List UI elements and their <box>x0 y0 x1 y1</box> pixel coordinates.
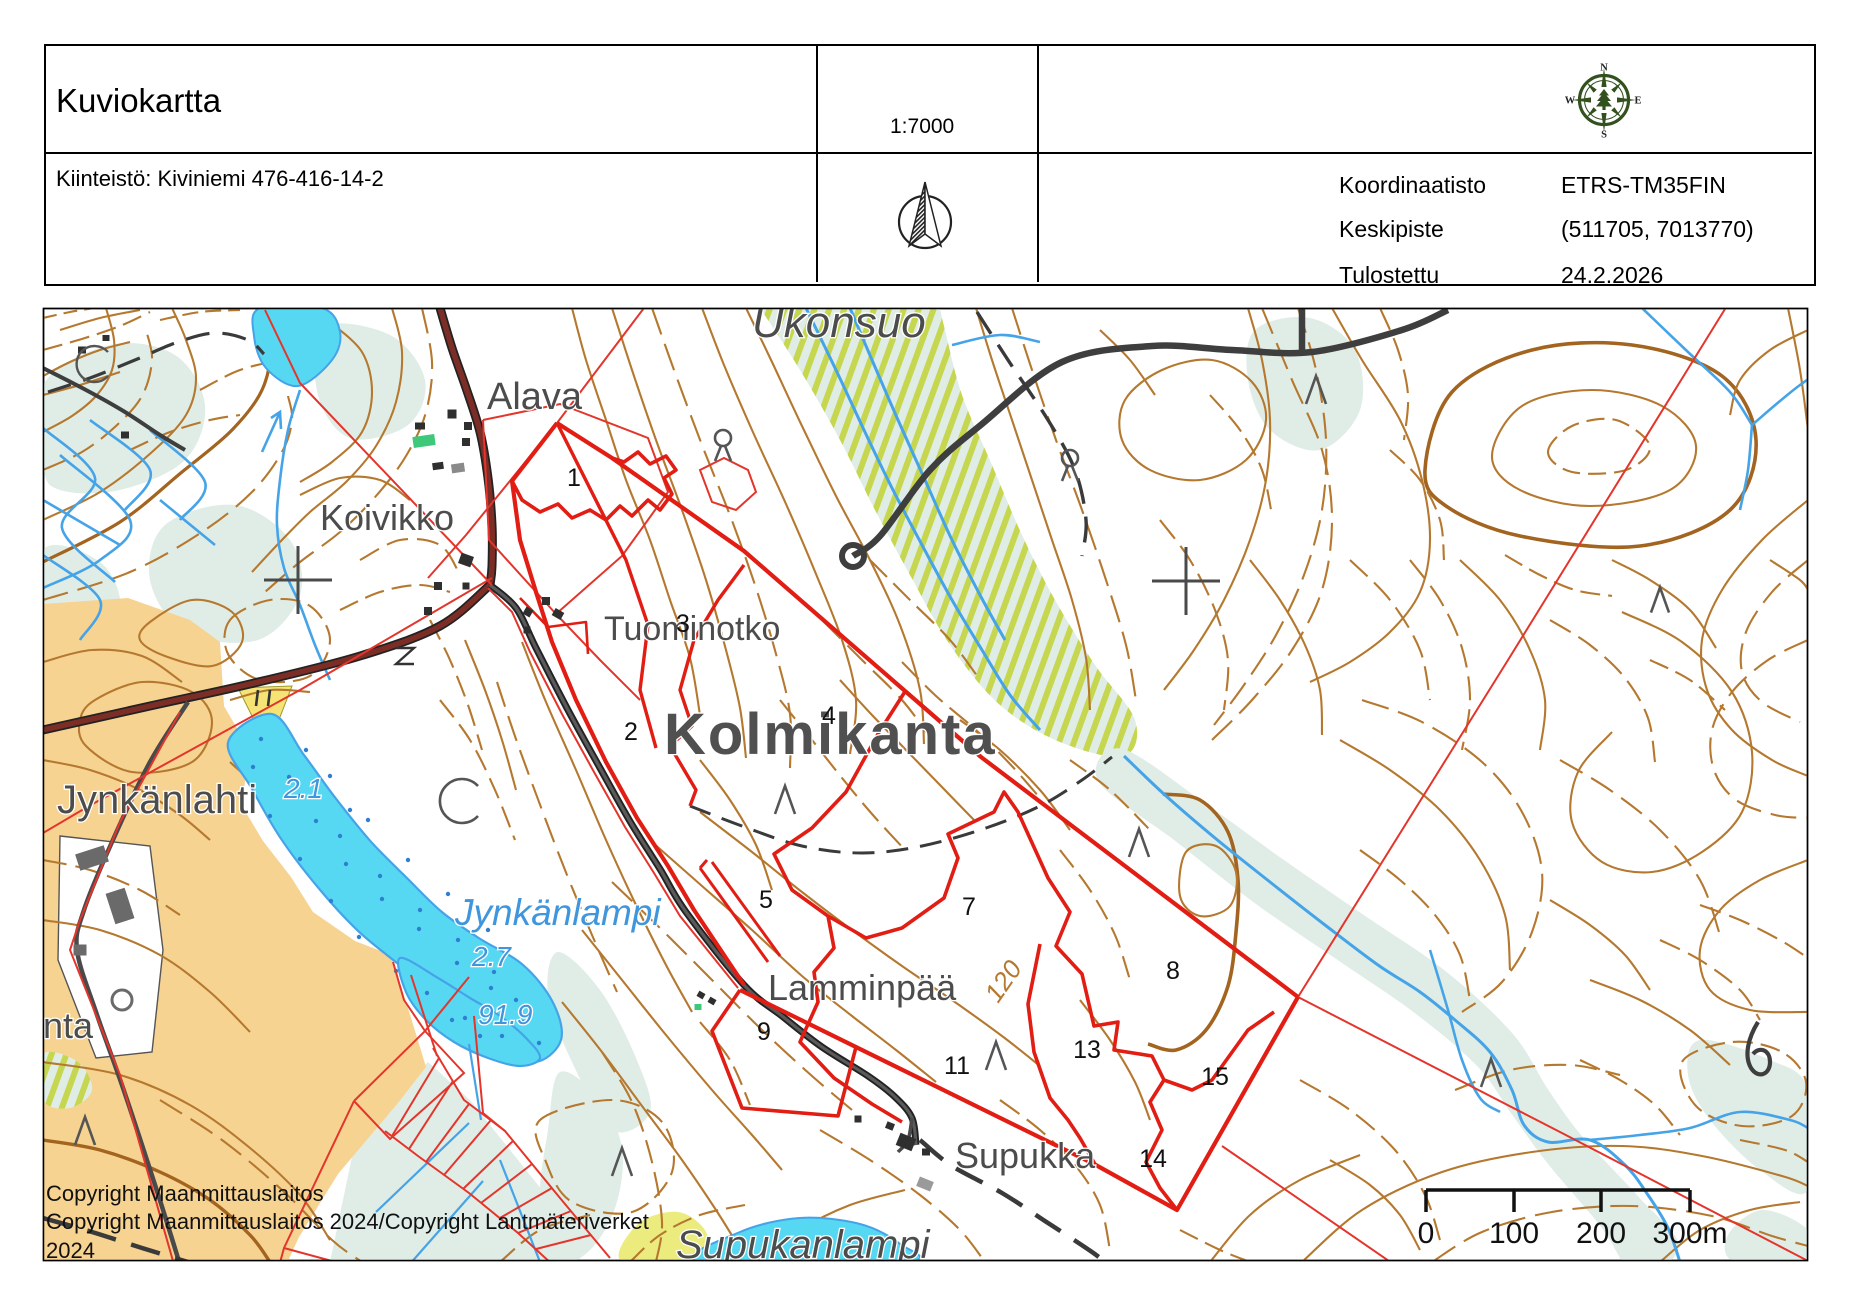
svg-text:7: 7 <box>962 893 976 921</box>
svg-text:2024: 2024 <box>46 1238 95 1263</box>
svg-text:200: 200 <box>1576 1217 1626 1250</box>
svg-text:11: 11 <box>944 1052 970 1080</box>
svg-text:2.1: 2.1 <box>283 773 323 804</box>
svg-text:1: 1 <box>567 464 581 492</box>
svg-text:Alava: Alava <box>487 376 583 418</box>
svg-text:0: 0 <box>1418 1217 1435 1250</box>
svg-text:14: 14 <box>1139 1145 1167 1173</box>
svg-text:nta: nta <box>43 1005 94 1046</box>
svg-text:91.9: 91.9 <box>478 999 533 1030</box>
svg-text:13: 13 <box>1073 1036 1101 1064</box>
svg-text:Jynkänlampi: Jynkänlampi <box>454 892 662 933</box>
svg-text:Ukonsuo: Ukonsuo <box>752 298 926 347</box>
svg-text:8: 8 <box>1166 957 1180 985</box>
svg-text:Copyright Maanmittauslaitos: Copyright Maanmittauslaitos <box>46 1181 324 1206</box>
svg-text:5: 5 <box>759 886 773 914</box>
svg-text:Koivikko: Koivikko <box>320 497 454 538</box>
svg-text:Tuominotko: Tuominotko <box>604 610 780 648</box>
svg-text:3: 3 <box>676 610 690 638</box>
svg-text:2.7: 2.7 <box>471 941 512 972</box>
svg-text:Jynkänlahti: Jynkänlahti <box>57 778 257 822</box>
svg-text:Lamminpää: Lamminpää <box>768 967 957 1008</box>
svg-text:300m: 300m <box>1652 1217 1727 1250</box>
svg-text:100: 100 <box>1489 1217 1539 1250</box>
svg-text:15: 15 <box>1201 1063 1229 1091</box>
svg-text:Copyright Maanmittauslaitos 20: Copyright Maanmittauslaitos 2024/Copyrig… <box>46 1209 649 1234</box>
svg-text:Supukka: Supukka <box>955 1135 1096 1176</box>
svg-text:4: 4 <box>822 702 836 730</box>
svg-text:9: 9 <box>757 1018 771 1046</box>
svg-text:2: 2 <box>624 718 638 746</box>
